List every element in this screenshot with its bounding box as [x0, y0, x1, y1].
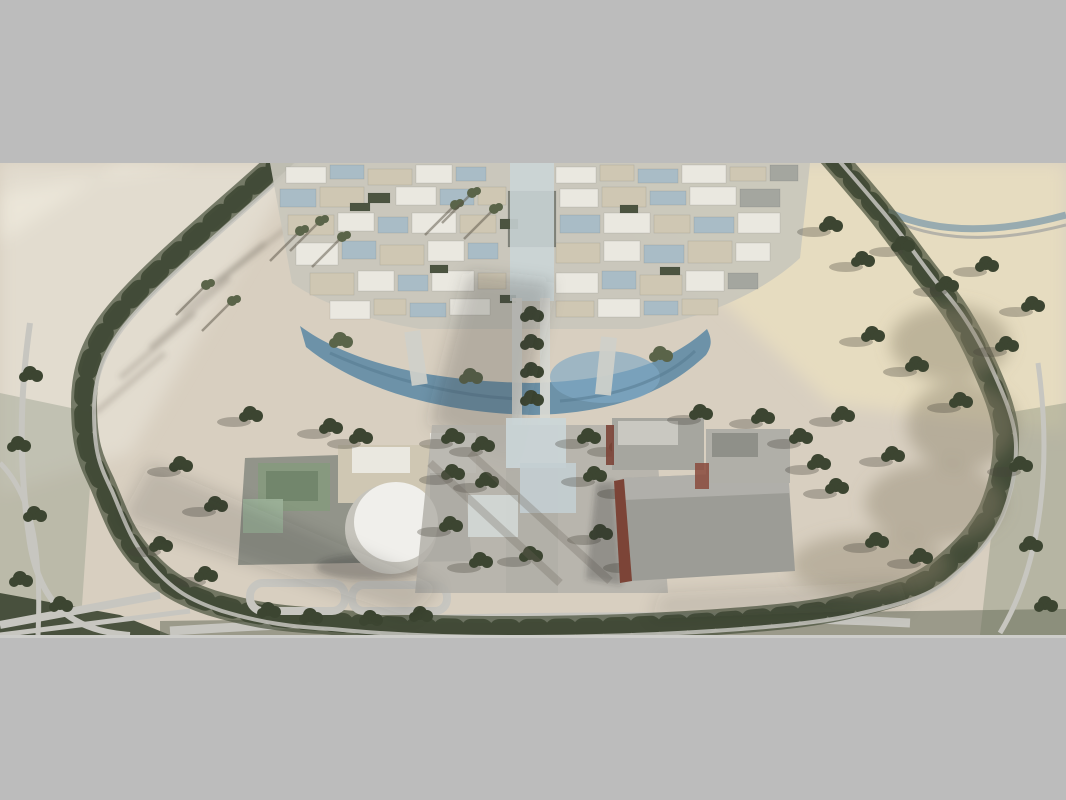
building [410, 303, 446, 317]
building [600, 165, 634, 181]
building [330, 301, 370, 319]
building [398, 275, 428, 291]
courtyard [350, 203, 370, 211]
building [738, 213, 780, 233]
courtyard [368, 193, 390, 203]
red-brown-wall [606, 425, 614, 465]
building [604, 213, 650, 233]
building [740, 189, 780, 207]
building [556, 301, 594, 317]
building [556, 167, 596, 183]
building [686, 271, 724, 291]
building [644, 245, 684, 263]
courtyard [660, 267, 680, 275]
building [342, 241, 376, 259]
building [602, 187, 646, 207]
building [478, 187, 506, 205]
building [368, 169, 412, 185]
building [690, 187, 736, 205]
building [280, 189, 316, 207]
building [638, 169, 678, 183]
building [468, 243, 498, 259]
building [286, 167, 326, 183]
courtyard [620, 205, 638, 213]
red-brown-wall [695, 463, 709, 489]
building [694, 217, 734, 233]
building [736, 243, 770, 261]
building [640, 275, 682, 295]
screenshot-root [0, 0, 1066, 800]
building [682, 165, 726, 183]
courtyard [430, 265, 448, 273]
building [358, 271, 394, 291]
building [330, 165, 364, 179]
aerial-render-image [0, 163, 1066, 635]
building [456, 167, 486, 181]
building [310, 273, 354, 295]
building [560, 189, 598, 207]
building [730, 167, 766, 181]
building [644, 301, 678, 315]
building [338, 213, 374, 231]
building [396, 187, 436, 205]
building [352, 447, 410, 473]
building [598, 299, 640, 317]
building [374, 299, 406, 315]
building [682, 299, 718, 315]
green-glass-roof [266, 471, 318, 501]
building [654, 215, 690, 233]
building [380, 245, 424, 265]
building [650, 191, 686, 205]
building [560, 215, 600, 233]
building [428, 241, 464, 261]
dark-roof [712, 433, 758, 457]
building [602, 271, 636, 289]
building [688, 241, 732, 263]
building [618, 421, 678, 445]
building [604, 241, 640, 261]
southeast-buildings [586, 418, 795, 585]
building [728, 273, 758, 289]
letterbox-top [0, 0, 1066, 163]
building [770, 165, 798, 181]
building [378, 217, 408, 233]
building [416, 165, 452, 183]
building [556, 273, 598, 293]
masterplan-scene [0, 163, 1066, 635]
letterbox-bottom [0, 635, 1066, 800]
building [556, 243, 600, 263]
